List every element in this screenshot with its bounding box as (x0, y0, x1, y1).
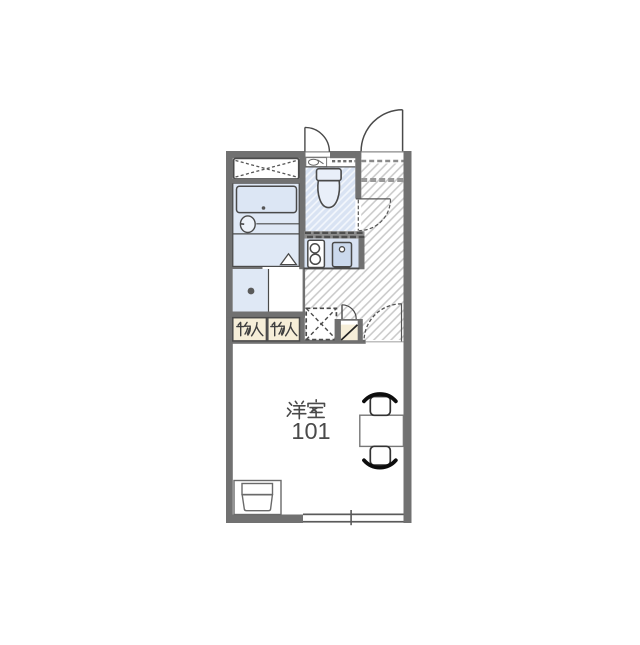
svg-text:101: 101 (291, 418, 330, 444)
